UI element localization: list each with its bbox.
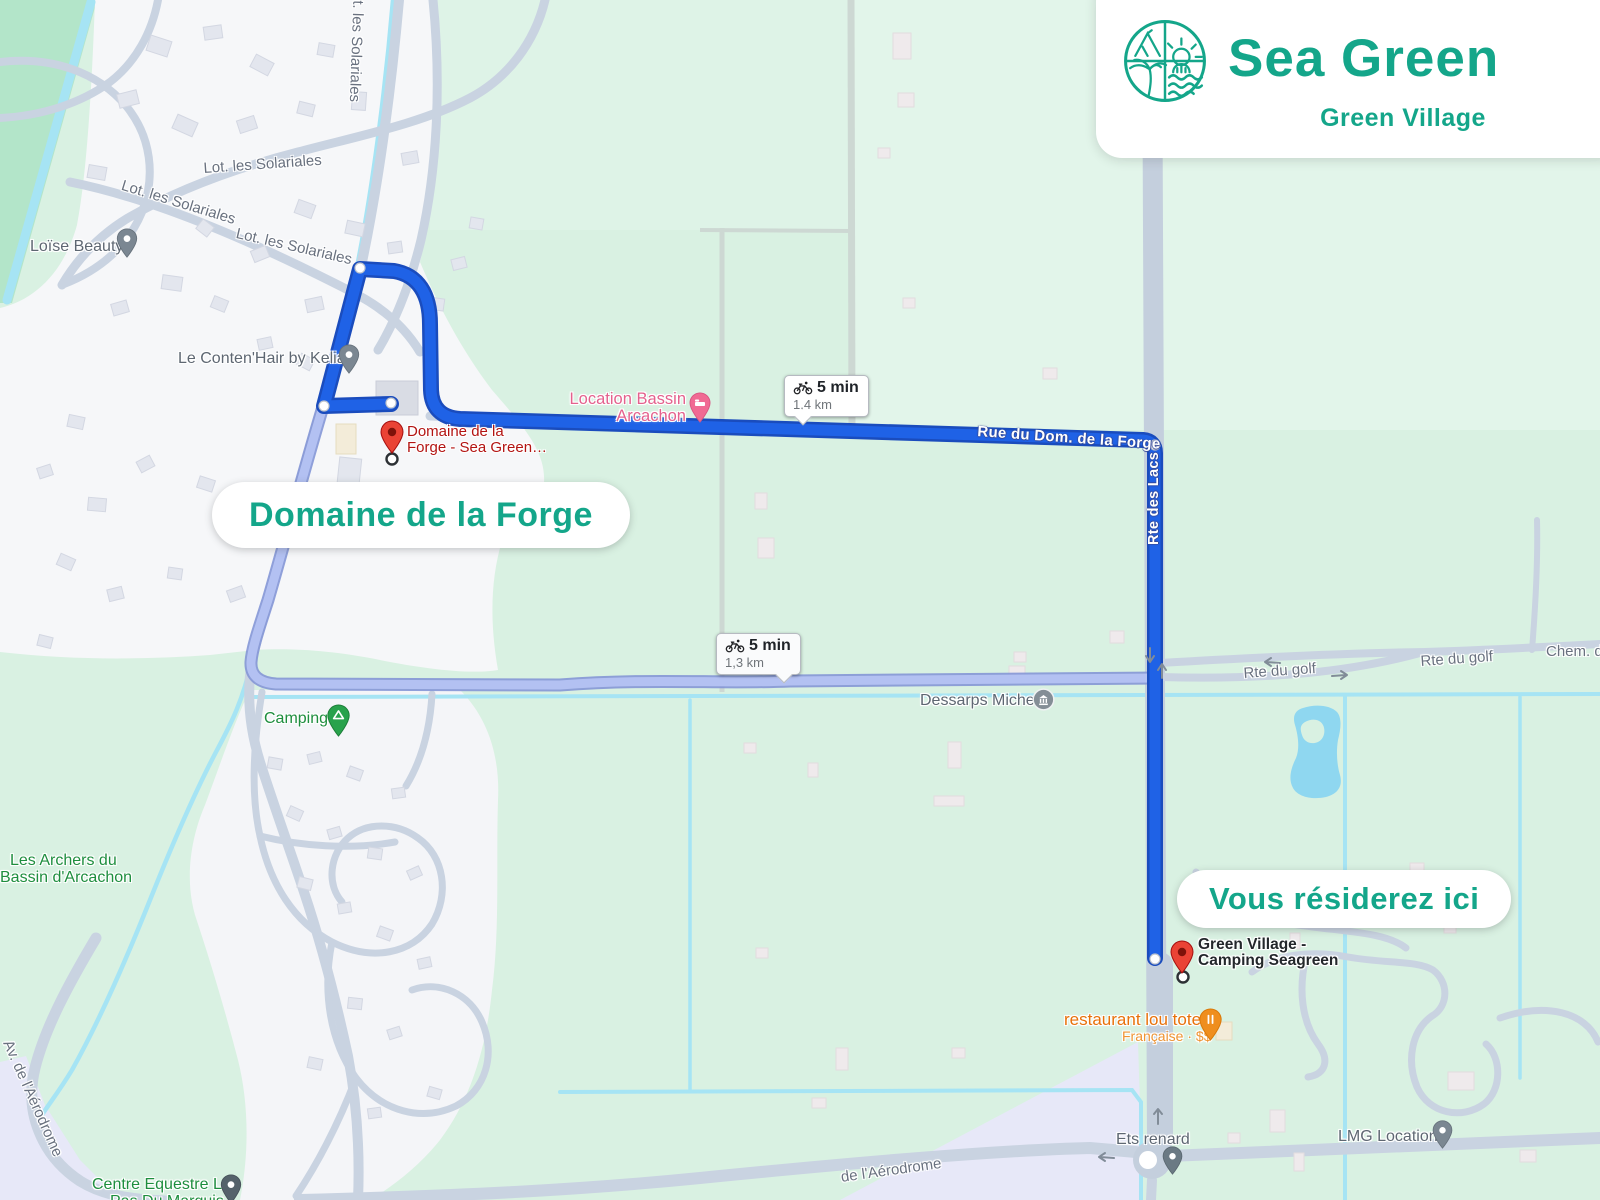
road-label-solariales-vertical: Lot. les Solariales <box>345 0 366 102</box>
origin-red-pin-icon[interactable] <box>380 420 404 454</box>
contenhair-pin-icon[interactable] <box>338 344 360 374</box>
centre-equestre-pin-icon[interactable] <box>220 1174 242 1200</box>
destination-red-pin-icon[interactable] <box>1170 940 1194 974</box>
pond <box>1290 706 1340 798</box>
poi-label-archers-1: Les Archers du <box>10 852 117 870</box>
bicycle-icon <box>725 639 745 653</box>
map-viewport[interactable]: Rue du Dom. de la Forge Rte des Lacs Lot… <box>0 0 1600 1200</box>
restaurant-pin-icon[interactable] <box>1198 1008 1223 1041</box>
marker-label-origin-2: Forge - Sea Green… <box>407 440 547 456</box>
institution-icon[interactable] <box>1032 688 1055 711</box>
terrain-areas <box>0 0 1600 1200</box>
badge-duration: 5 min <box>749 637 791 655</box>
poi-label-location-bassin-2[interactable]: Arcachon <box>560 407 686 425</box>
poi-label-dessarps[interactable]: Dessarps Michel <box>920 692 1038 710</box>
brand-name: Sea Green <box>1228 32 1600 85</box>
brand-card: Sea Green Green Village <box>1096 0 1600 158</box>
poi-label-loise-beauty[interactable]: Loïse Beauty <box>30 238 123 256</box>
loise-beauty-pin-icon[interactable] <box>116 228 138 258</box>
road-label-chem: Chem. d <box>1546 644 1600 661</box>
map-canvas[interactable] <box>0 0 1600 1200</box>
poi-label-centre-equestre-1: Centre Equestre Le <box>92 1176 231 1194</box>
poi-label-camping[interactable]: Camping <box>264 710 328 728</box>
poi-label-centre-equestre-2: Pas Du Marquis <box>110 1193 224 1200</box>
marker-label-origin-1: Domaine de la <box>407 424 504 440</box>
route-badge-primary[interactable]: 5 min 1,4 km <box>784 375 869 417</box>
beach-camp-sun-waves-icon <box>1122 18 1208 104</box>
poi-label-restaurant[interactable]: restaurant lou totem <box>1064 1011 1215 1030</box>
lmg-pin-icon[interactable] <box>1432 1120 1453 1149</box>
route-badge-alternate[interactable]: 5 min 1,3 km <box>716 633 801 675</box>
poi-label-lmg[interactable]: LMG Location <box>1338 1128 1438 1146</box>
badge-duration: 5 min <box>817 379 859 397</box>
origin-callout-pill: Domaine de la Forge <box>212 482 630 548</box>
marker-label-destination-1: Green Village - <box>1198 937 1306 953</box>
poi-label-archers-2: Bassin d'Arcachon <box>0 869 132 887</box>
lodging-pin-icon[interactable] <box>688 392 712 423</box>
marker-label-destination-2: Camping Seagreen <box>1198 953 1338 969</box>
bicycle-icon <box>793 381 813 395</box>
destination-callout-pill: Vous résiderez ici <box>1177 870 1511 928</box>
camping-pin-icon[interactable] <box>326 704 351 737</box>
poi-label-contenhair[interactable]: Le Conten'Hair by Kelian <box>178 350 355 368</box>
ets-renard-pin-icon[interactable] <box>1162 1146 1183 1175</box>
poi-label-location-bassin-1[interactable]: Location Bassin <box>560 390 686 408</box>
street-label-rte-des-lacs: Rte des Lacs <box>1146 452 1162 545</box>
brand-subtitle: Green Village <box>1228 104 1578 133</box>
